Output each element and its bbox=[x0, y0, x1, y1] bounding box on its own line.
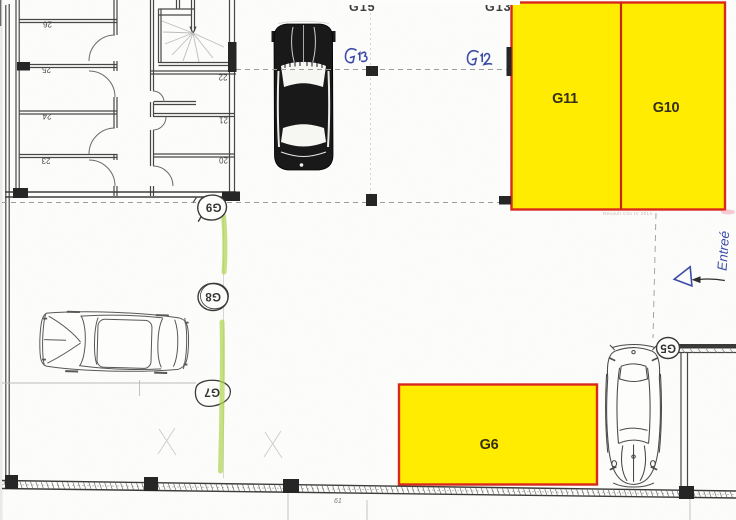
svg-text:25: 25 bbox=[42, 65, 51, 74]
svg-text:G5: G5 bbox=[660, 342, 676, 354]
svg-text:22: 22 bbox=[218, 73, 227, 82]
svg-text:G8: G8 bbox=[205, 290, 221, 302]
svg-text:61: 61 bbox=[334, 498, 342, 505]
svg-text:G10: G10 bbox=[653, 100, 680, 116]
svg-text:21: 21 bbox=[219, 116, 228, 125]
svg-text:24: 24 bbox=[42, 112, 51, 121]
svg-text:Renault Clio IV 2014: Renault Clio IV 2014 bbox=[603, 211, 652, 216]
svg-text:G6: G6 bbox=[480, 437, 499, 453]
svg-text:Entreé: Entreé bbox=[715, 230, 733, 271]
svg-text:G9: G9 bbox=[206, 201, 222, 213]
svg-text:G11: G11 bbox=[552, 91, 578, 107]
svg-text:G7: G7 bbox=[204, 386, 220, 398]
svg-text:26: 26 bbox=[43, 20, 52, 29]
svg-text:23: 23 bbox=[41, 156, 50, 165]
svg-text:20: 20 bbox=[219, 156, 228, 165]
